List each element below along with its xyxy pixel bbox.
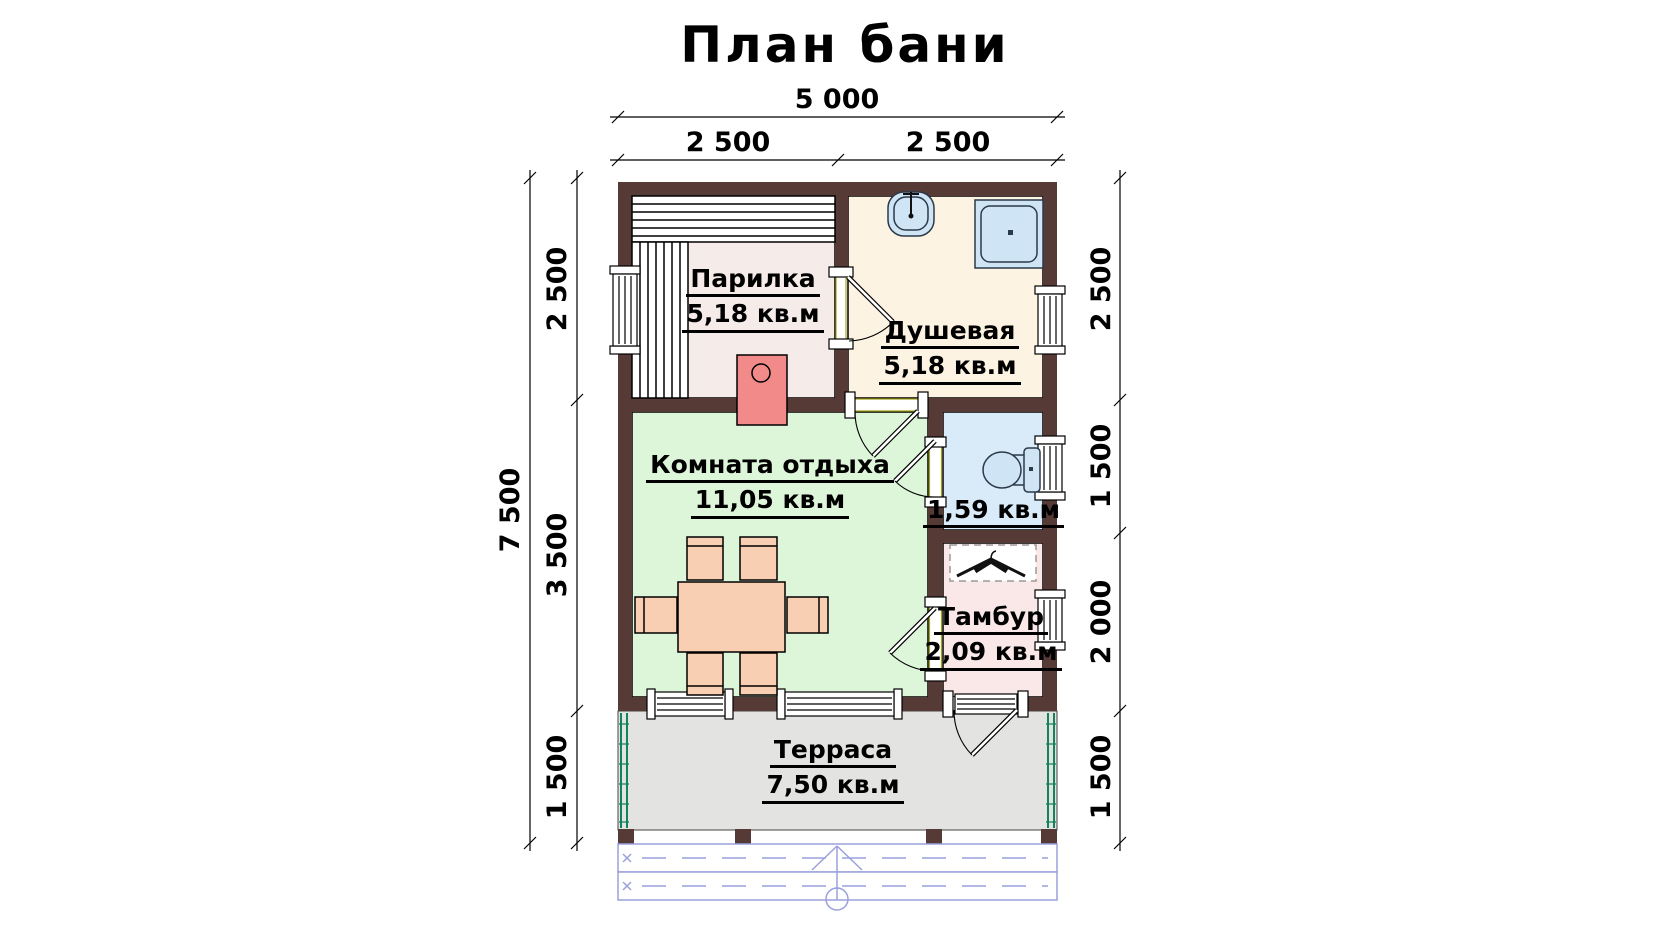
page-title: План бани (545, 16, 1145, 74)
terrace-post (1041, 829, 1057, 844)
label-toilet: 1,59 кв.м (923, 497, 1063, 532)
label-parilka: Парилка 5,18 кв.м (653, 266, 853, 337)
room-name: Парилка (686, 266, 819, 297)
label-lounge: Комната отдыха 11,05 кв.м (630, 452, 910, 523)
dim-left-seg-2: 1 500 (543, 697, 573, 857)
dim-right-seg-3: 1 500 (1087, 697, 1117, 857)
room-area: 5,18 кв.м (879, 353, 1020, 384)
room-area: 11,05 кв.м (691, 487, 850, 518)
wall-top (618, 182, 1057, 196)
stove-icon (737, 355, 787, 425)
wall-mid-b (918, 398, 1043, 412)
room-name: Комната отдыха (646, 452, 894, 483)
shower-tray-icon (975, 200, 1043, 268)
label-tambour: Тамбур 2,09 кв.м (911, 604, 1071, 675)
dim-right-seg-2: 2 000 (1087, 542, 1117, 702)
chair (787, 597, 828, 633)
terrace-post (926, 829, 942, 844)
dim-left-seg-1: 3 500 (543, 475, 573, 635)
chair (687, 537, 723, 580)
room-area: 5,18 кв.м (682, 301, 823, 332)
window-parilka-left (610, 266, 640, 354)
terrace-post (735, 829, 751, 844)
table (678, 582, 785, 652)
dim-top-total: 5 000 (757, 85, 917, 115)
wall-parilka-shower-a (835, 196, 848, 275)
room-area: 1,59 кв.м (923, 497, 1064, 528)
dim-right-seg-1: 1 500 (1087, 386, 1117, 546)
entrance-steps (618, 844, 1057, 910)
sink-icon (888, 192, 934, 236)
bathhouse-floor-plan-page: { "title": "План бани", "rooms": { "pari… (0, 0, 1662, 935)
label-dushevaya: Душевая 5,18 кв.м (850, 318, 1050, 389)
room-name: Тамбур (934, 604, 1048, 635)
chair (740, 653, 777, 695)
room-area: 2,09 кв.м (920, 639, 1061, 670)
room-name: Терраса (770, 737, 896, 768)
wall-left (618, 182, 632, 711)
dim-right-seg-0: 2 500 (1087, 209, 1117, 369)
coat-hanger-icon (950, 545, 1036, 581)
dim-left-seg-0: 2 500 (543, 209, 573, 369)
chair (740, 537, 777, 580)
window-lounge-terrace-right (777, 689, 902, 719)
terrace-post (618, 829, 634, 844)
dim-top-right: 2 500 (868, 128, 1028, 158)
dim-top-left: 2 500 (648, 128, 808, 158)
room-area: 7,50 кв.м (762, 772, 903, 803)
dim-left-total: 7 500 (496, 430, 526, 590)
chair (635, 597, 677, 633)
room-name: Душевая (881, 318, 1020, 349)
toilet-icon (983, 448, 1040, 492)
chair (687, 653, 723, 695)
label-terrace: Терраса 7,50 кв.м (733, 737, 933, 808)
